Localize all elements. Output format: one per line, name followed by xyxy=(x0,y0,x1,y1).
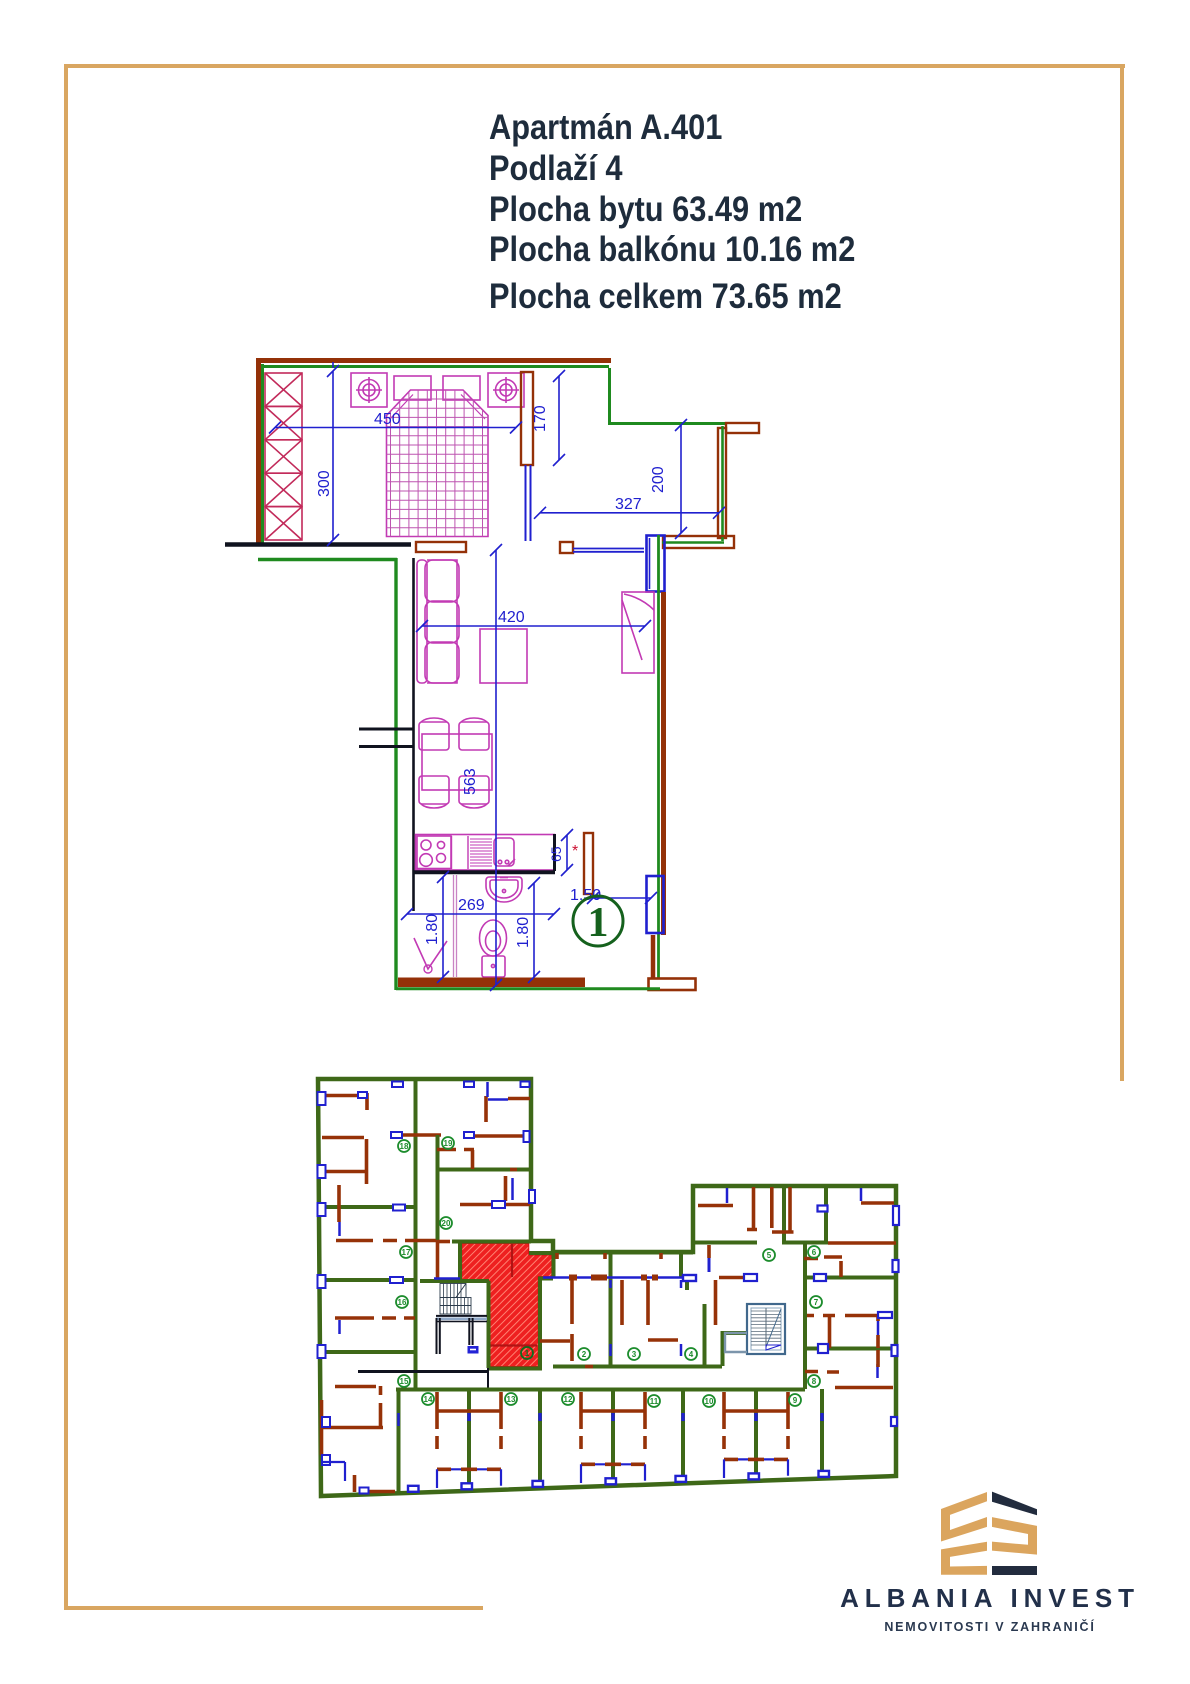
svg-text:5: 5 xyxy=(767,1251,772,1260)
svg-text:1: 1 xyxy=(588,900,609,946)
svg-text:10: 10 xyxy=(705,1397,714,1406)
svg-text:12: 12 xyxy=(564,1395,573,1404)
svg-text:1.80: 1.80 xyxy=(515,917,532,948)
svg-text:327: 327 xyxy=(615,496,642,513)
svg-text:450: 450 xyxy=(374,411,401,428)
svg-text:11: 11 xyxy=(650,1397,659,1406)
svg-text:269: 269 xyxy=(458,897,485,914)
svg-text:1.80: 1.80 xyxy=(424,914,441,945)
svg-text:9: 9 xyxy=(793,1396,798,1405)
svg-text:8: 8 xyxy=(812,1377,817,1386)
svg-text:65: 65 xyxy=(548,846,564,862)
svg-text:300: 300 xyxy=(316,470,333,497)
svg-text:4: 4 xyxy=(689,1350,694,1359)
svg-text:14: 14 xyxy=(424,1395,433,1404)
svg-text:563: 563 xyxy=(462,768,479,795)
svg-text:2: 2 xyxy=(582,1350,587,1359)
svg-text:6: 6 xyxy=(812,1248,817,1257)
svg-text:18: 18 xyxy=(400,1142,409,1151)
svg-text:420: 420 xyxy=(498,609,525,626)
svg-text:3: 3 xyxy=(632,1350,637,1359)
svg-text:7: 7 xyxy=(814,1298,819,1307)
svg-text:19: 19 xyxy=(444,1139,453,1148)
svg-text:13: 13 xyxy=(507,1395,516,1404)
svg-text:170: 170 xyxy=(532,405,549,432)
svg-text:1: 1 xyxy=(525,1349,530,1358)
svg-text:*: * xyxy=(572,843,578,860)
svg-text:20: 20 xyxy=(442,1219,451,1228)
svg-text:17: 17 xyxy=(402,1248,411,1257)
svg-text:15: 15 xyxy=(400,1377,409,1386)
svg-text:16: 16 xyxy=(398,1298,407,1307)
svg-text:200: 200 xyxy=(650,466,667,493)
